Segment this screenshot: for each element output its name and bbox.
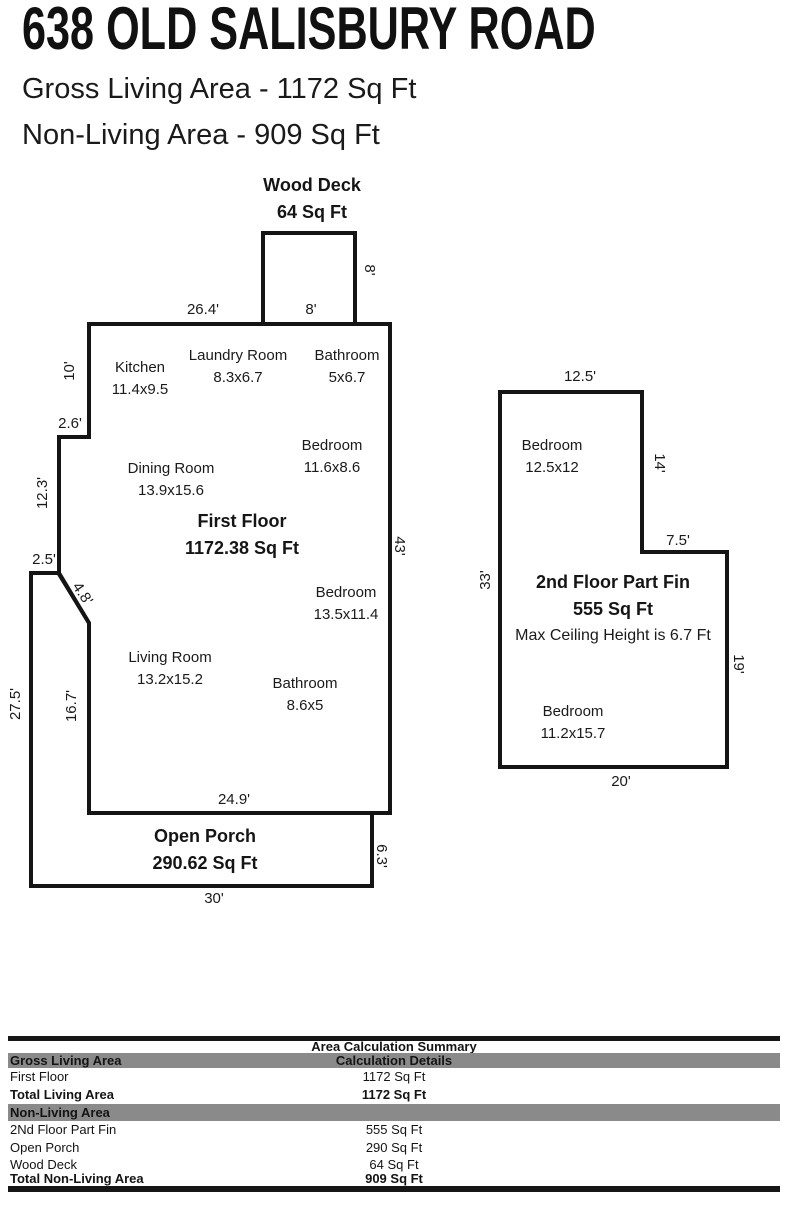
dim-2f-step-7-5: 7.5' [666,530,690,552]
row-label: Total Living Area [10,1086,114,1104]
table-bottom-bar [8,1186,780,1192]
row-label: 2Nd Floor Part Fin [10,1121,116,1139]
dim-deck-bottom-8: 8' [305,299,316,321]
room-name: Bathroom [272,673,337,695]
wood-deck-label: Wood Deck 64 Sq Ft [263,172,361,226]
dim-right-43: 43' [388,536,410,556]
table-row: First Floor 1172 Sq Ft [8,1068,780,1086]
room-dims: 13.9x15.6 [128,480,215,502]
room-dining: Dining Room 13.9x15.6 [128,458,215,502]
row-label: First Floor [10,1068,69,1086]
dim-bottom-24-9: 24.9' [218,789,250,811]
room-name: Dining Room [128,458,215,480]
room-name: Kitchen [112,357,168,379]
open-porch-title: Open Porch [152,823,257,850]
total-non-living-row: Total Non-Living Area 909 Sq Ft [8,1173,780,1186]
room-dims: 8.6x5 [272,695,337,717]
row-value: 1172 Sq Ft [8,1068,780,1086]
first-floor-title: First Floor [185,508,299,535]
room-bathroom-lower: Bathroom 8.6x5 [272,673,337,717]
open-porch-label: Open Porch 290.62 Sq Ft [152,823,257,877]
dim-left-16-7: 16.7' [61,690,83,722]
room-bedroom-2f-upper: Bedroom 12.5x12 [522,435,583,479]
wood-deck-title: Wood Deck [263,172,361,199]
table-title: Area Calculation Summary [8,1041,780,1053]
dim-left-10: 10' [59,361,81,381]
calculation-details-header: Calculation Details [8,1053,780,1068]
first-floor-label: First Floor 1172.38 Sq Ft [185,508,299,562]
row-value: 290 Sq Ft [8,1139,780,1156]
non-living-header-row: Non-Living Area [8,1104,780,1121]
dim-porch-bottom-30: 30' [204,888,224,910]
room-name: Living Room [128,647,211,669]
row-value: 555 Sq Ft [8,1121,780,1139]
room-dims: 11.2x15.7 [541,723,606,745]
room-name: Bathroom [314,345,379,367]
room-dims: 5x6.7 [314,367,379,389]
row-label: Open Porch [10,1139,79,1156]
room-dims: 13.2x15.2 [128,669,211,691]
dim-deck-right-8: 8' [358,264,380,275]
non-living-header: Non-Living Area [10,1104,110,1121]
gross-living-header-row: Gross Living Area Calculation Details [8,1053,780,1068]
dim-notch-2-6: 2.6' [58,413,82,435]
row-label: Total Non-Living Area [10,1173,144,1185]
room-bedroom-lower: Bedroom 13.5x11.4 [314,582,379,626]
dim-top-26-4: 26.4' [187,299,219,321]
dim-2f-right-19: 19' [727,654,749,674]
room-dims: 8.3x6.7 [189,367,287,389]
room-bathroom-upper: Bathroom 5x6.7 [314,345,379,389]
dim-left-12-3: 12.3' [32,477,54,509]
gross-living-header: Gross Living Area [10,1053,122,1068]
total-living-row: Total Living Area 1172 Sq Ft [8,1086,780,1104]
row-value: 1172 Sq Ft [8,1086,780,1104]
open-porch-area: 290.62 Sq Ft [152,850,257,877]
floor-plan-page: 638 OLD SALISBURY ROAD Gross Living Area… [0,0,785,1211]
room-name: Bedroom [541,701,606,723]
dim-2f-bottom-20: 20' [611,771,631,793]
room-name: Bedroom [522,435,583,457]
second-floor-label: 2nd Floor Part Fin 555 Sq Ft [536,569,690,623]
room-dims: 11.4x9.5 [112,379,168,401]
dim-porch-left-27-5: 27.5' [5,688,27,720]
ceiling-height-note: Max Ceiling Height is 6.7 Ft [515,625,711,647]
room-dims: 11.6x8.6 [302,457,363,479]
dim-notch-2-5: 2.5' [32,549,56,571]
dim-2f-top-12-5: 12.5' [564,366,596,388]
dim-porch-right-6-3: 6.3' [370,844,392,868]
dim-2f-right-14: 14' [648,453,670,473]
room-bedroom-2f-lower: Bedroom 11.2x15.7 [541,701,606,745]
area-calculation-table: Area Calculation Summary Gross Living Ar… [8,1036,780,1192]
dim-2f-left-33: 33' [475,570,497,590]
room-kitchen: Kitchen 11.4x9.5 [112,357,168,401]
table-row: Open Porch 290 Sq Ft [8,1139,780,1156]
room-living: Living Room 13.2x15.2 [128,647,211,691]
room-name: Laundry Room [189,345,287,367]
room-dims: 12.5x12 [522,457,583,479]
room-dims: 13.5x11.4 [314,604,379,626]
second-floor-area: 555 Sq Ft [536,596,690,623]
room-laundry: Laundry Room 8.3x6.7 [189,345,287,389]
room-name: Bedroom [314,582,379,604]
first-floor-outline [59,324,390,813]
second-floor-title: 2nd Floor Part Fin [536,569,690,596]
table-row: 2Nd Floor Part Fin 555 Sq Ft [8,1121,780,1139]
room-bedroom-upper: Bedroom 11.6x8.6 [302,435,363,479]
wood-deck-area: 64 Sq Ft [263,199,361,226]
first-floor-area: 1172.38 Sq Ft [185,535,299,562]
room-name: Bedroom [302,435,363,457]
